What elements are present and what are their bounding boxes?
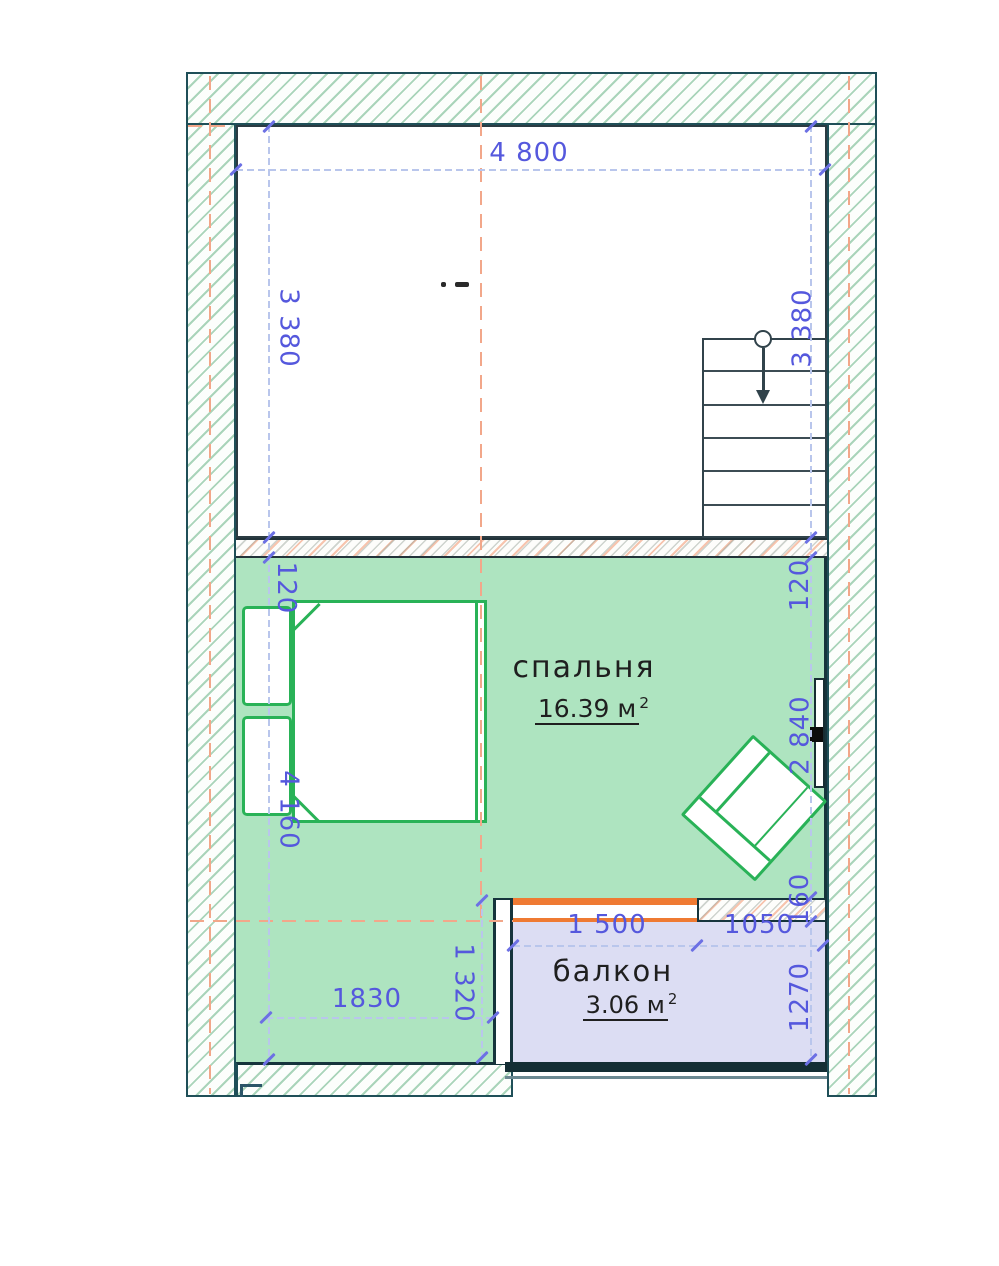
dim-lower-width: 1830: [297, 984, 437, 1014]
step-mark-v: [240, 1084, 243, 1097]
dim-bedroom-left-height: 4 160: [274, 763, 304, 858]
bedroom-area-sup: 2: [639, 694, 649, 712]
axis-line-horizontal: [188, 125, 234, 127]
balcony-label: балкон: [513, 954, 713, 988]
wall-top: [186, 72, 877, 125]
wall-right: [827, 123, 877, 1097]
balcony-left-wall: [493, 898, 513, 1064]
stair-tread: [704, 504, 825, 506]
bed-pillow: [242, 606, 292, 706]
axis-line-vertical: [209, 76, 211, 1094]
dimension-line: [481, 898, 483, 1062]
wall-left: [186, 123, 236, 1097]
dim-wall-right: 120: [785, 557, 815, 613]
axis-line-vertical: [480, 76, 482, 920]
balcony-area-value: 3.06 м: [583, 991, 668, 1021]
stray-mark: [441, 282, 446, 287]
bedroom-label: спальня: [484, 650, 684, 685]
dim-bedroom-right-height: 2 840: [786, 688, 816, 783]
dimension-line: [268, 125, 270, 1062]
dimension-line: [513, 945, 825, 947]
stairs-direction-line: [762, 348, 765, 392]
balcony-area-sup: 2: [668, 990, 677, 1008]
bed-inner-line: [475, 603, 478, 820]
bedroom-area-value: 16.39 м: [535, 694, 639, 725]
dim-window-width: 1 500: [537, 910, 677, 940]
wall-middle-thin: [236, 538, 827, 558]
stair-tread: [704, 470, 825, 472]
wall-bottom-left: [236, 1062, 513, 1097]
stair-tread: [704, 404, 825, 406]
bed: [292, 600, 487, 823]
bedroom-area: 16.39 м2: [492, 694, 692, 723]
stair-tread: [704, 437, 825, 439]
axis-line-vertical: [848, 76, 850, 1094]
dim-upper-right-height: 3 380: [788, 281, 818, 376]
stray-mark: [455, 282, 469, 287]
dim-pier-width: 1050: [699, 910, 819, 940]
dimension-line: [236, 169, 825, 171]
balcony-railing-outer-line: [505, 1076, 827, 1079]
dim-balcony-height: 1270: [785, 957, 815, 1037]
stairs-direction-arrowhead: [756, 390, 770, 404]
step-mark-h: [240, 1084, 262, 1087]
balcony-railing: [505, 1062, 827, 1072]
dim-lower-height: 1 320: [449, 941, 479, 1026]
dim-top-width: 4 800: [459, 138, 599, 168]
floor-plan: 4 800 3 380 3 380 120 120 4 160 2 840 16…: [0, 0, 999, 1266]
stairs-start-circle: [754, 330, 772, 348]
axis-line-horizontal: [190, 920, 513, 922]
balcony-area: 3.06 м2: [530, 990, 730, 1019]
dim-wall-left: 120: [271, 560, 301, 616]
dim-upper-left-height: 3 380: [274, 281, 304, 376]
